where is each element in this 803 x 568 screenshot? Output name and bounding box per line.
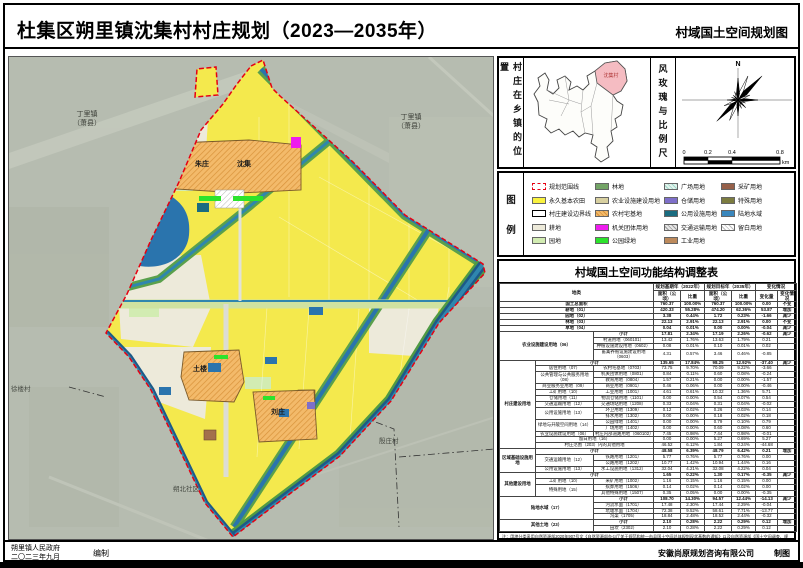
sheet-frame — [3, 3, 800, 562]
plan-sheet: 杜集区朔里镇沈集村村庄规划（2023—2035年） 村域国土空间规划图 — [0, 0, 803, 568]
bottom-strip — [0, 562, 803, 568]
